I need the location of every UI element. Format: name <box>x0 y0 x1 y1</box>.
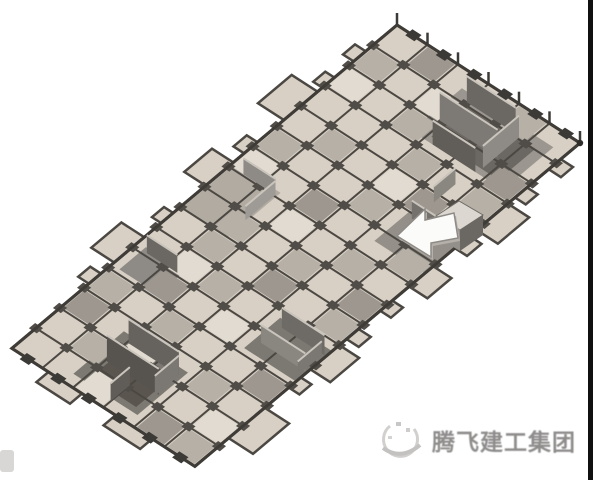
corner-watermark-fragment <box>0 450 14 472</box>
company-logo-icon <box>376 414 424 466</box>
article-page: 腾飞建工集团 <box>0 0 600 480</box>
watermark-text: 腾飞建工集团 <box>432 423 576 457</box>
right-edge-bar <box>588 0 593 480</box>
floor-slab <box>0 5 600 480</box>
watermark: 腾飞建工集团 <box>376 412 588 468</box>
bim-model-render <box>0 0 600 480</box>
